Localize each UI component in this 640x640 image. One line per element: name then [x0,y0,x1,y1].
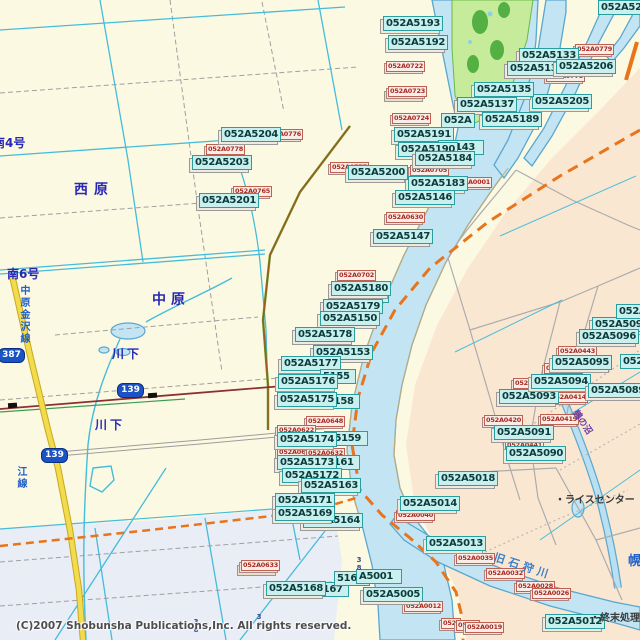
map-base-svg [0,0,640,640]
map-canvas[interactable]: 052A0722052A0723052A0724052A0776052A0778… [0,0,640,640]
copyright-notice: (C)2007 Shobunsha Publications,Inc. All … [16,620,351,632]
park-pond-dot [488,12,493,17]
park-pond-dot [468,40,472,44]
